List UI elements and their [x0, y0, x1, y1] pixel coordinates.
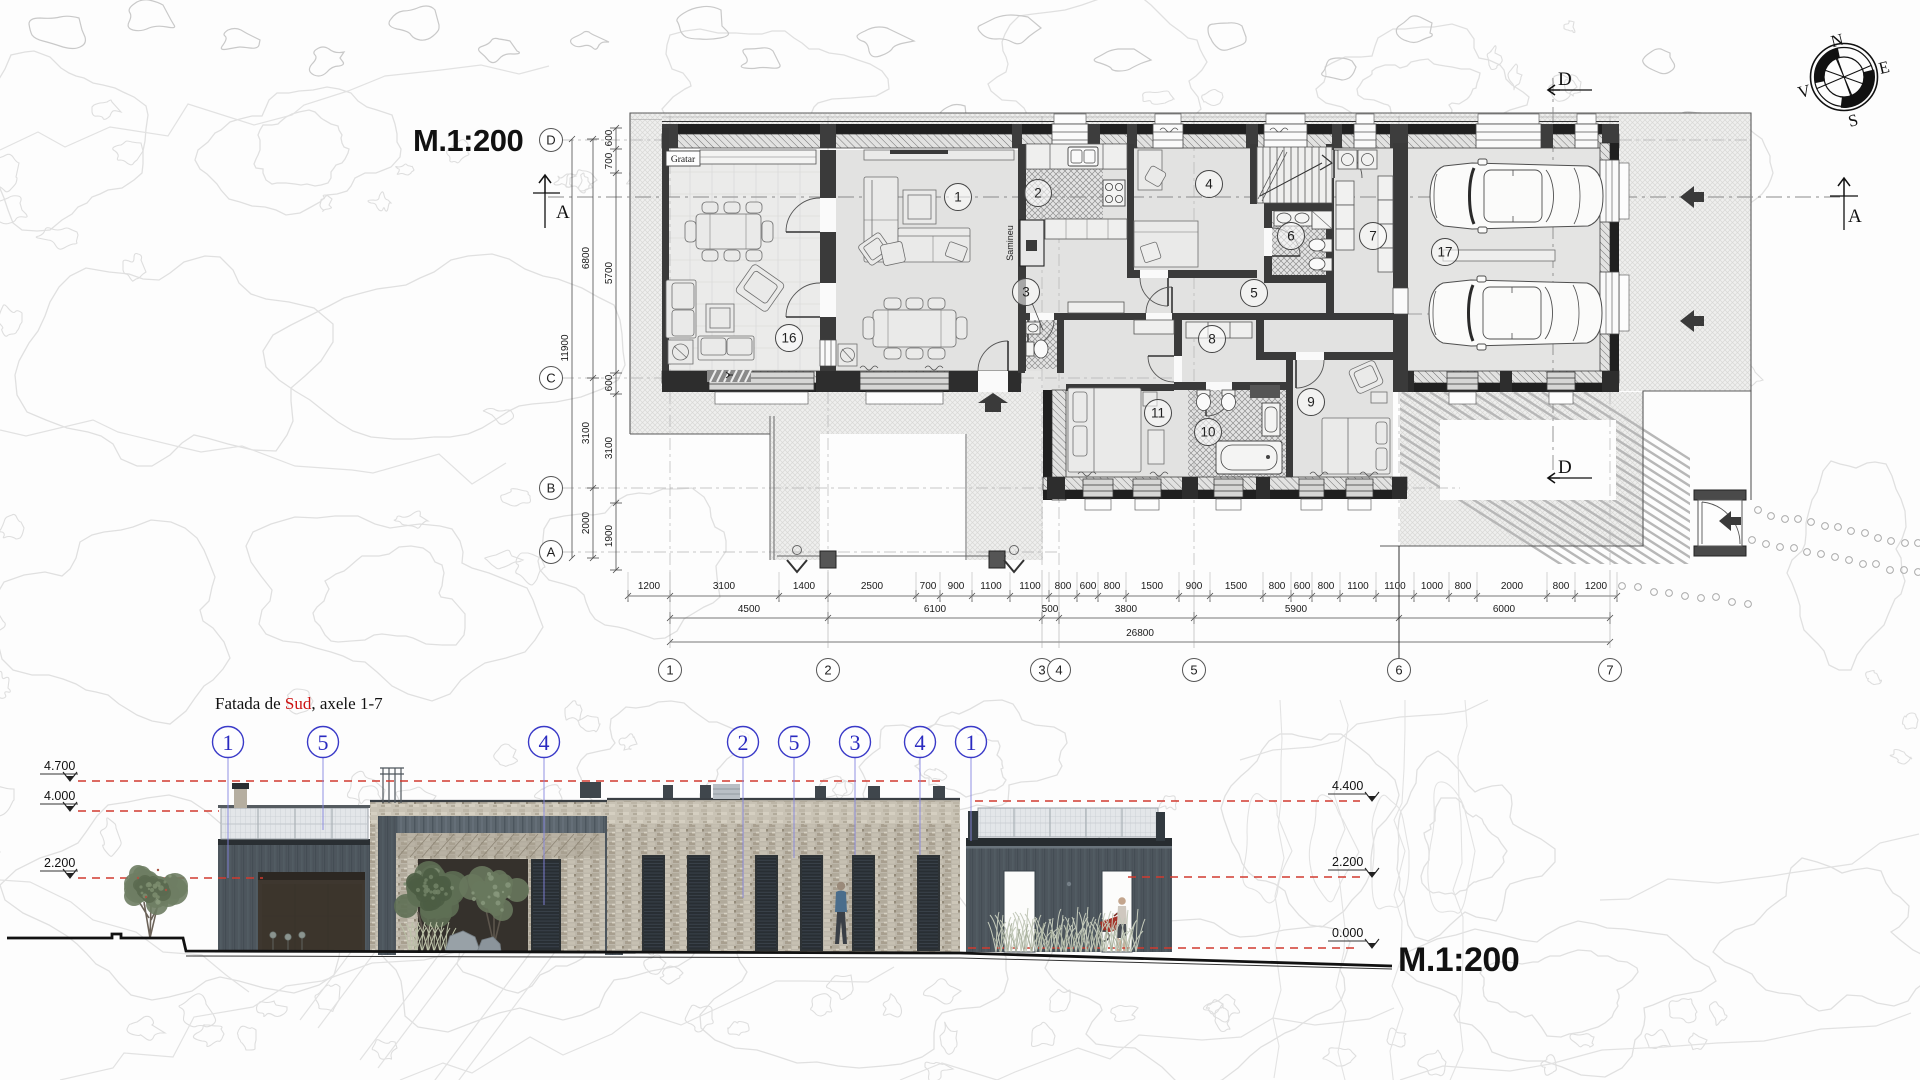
svg-text:3100: 3100	[604, 436, 615, 459]
svg-text:D: D	[1558, 69, 1572, 90]
svg-text:3100: 3100	[713, 581, 736, 592]
svg-text:10: 10	[1200, 425, 1215, 440]
svg-text:600: 600	[1080, 581, 1097, 592]
svg-text:E: E	[1877, 57, 1892, 78]
svg-text:6100: 6100	[924, 604, 947, 615]
svg-text:3100: 3100	[581, 421, 592, 444]
svg-text:600: 600	[604, 129, 615, 146]
svg-text:700: 700	[920, 581, 937, 592]
svg-text:800: 800	[1455, 581, 1472, 592]
svg-text:500: 500	[1042, 604, 1059, 615]
svg-text:4.700: 4.700	[44, 759, 75, 773]
svg-text:800: 800	[1553, 581, 1570, 592]
svg-text:4: 4	[539, 730, 550, 755]
svg-text:5: 5	[318, 730, 329, 755]
svg-text:1200: 1200	[638, 581, 661, 592]
svg-text:1400: 1400	[793, 581, 816, 592]
svg-text:A: A	[1848, 206, 1862, 227]
svg-text:1100: 1100	[1019, 581, 1041, 592]
svg-text:1200: 1200	[1585, 581, 1608, 592]
svg-text:1900: 1900	[604, 524, 615, 547]
svg-text:1000: 1000	[1421, 581, 1444, 592]
svg-text:4: 4	[1055, 663, 1062, 678]
svg-text:4.000: 4.000	[44, 789, 75, 803]
svg-text:5900: 5900	[1285, 604, 1308, 615]
svg-text:6: 6	[1395, 663, 1402, 678]
svg-text:800: 800	[1318, 581, 1335, 592]
svg-text:4500: 4500	[738, 604, 761, 615]
svg-text:11900: 11900	[560, 334, 571, 362]
svg-text:600: 600	[604, 374, 615, 391]
svg-text:2: 2	[738, 730, 749, 755]
svg-text:800: 800	[1055, 581, 1072, 592]
svg-text:A: A	[547, 545, 556, 560]
svg-text:1500: 1500	[1141, 581, 1164, 592]
svg-text:6000: 6000	[1493, 604, 1516, 615]
svg-text:26800: 26800	[1126, 628, 1154, 639]
svg-text:1: 1	[966, 730, 977, 755]
svg-text:600: 600	[1294, 581, 1311, 592]
svg-text:5700: 5700	[604, 261, 615, 284]
svg-text:2.200: 2.200	[1332, 855, 1363, 869]
svg-text:0.000: 0.000	[1332, 926, 1363, 940]
svg-text:1: 1	[223, 730, 234, 755]
svg-text:D: D	[1558, 457, 1572, 478]
svg-text:5: 5	[789, 730, 800, 755]
svg-text:2000: 2000	[1501, 581, 1524, 592]
svg-text:11: 11	[1151, 406, 1165, 421]
svg-text:6: 6	[1287, 229, 1295, 244]
svg-text:16: 16	[781, 331, 796, 346]
svg-text:2500: 2500	[861, 581, 884, 592]
svg-text:S: S	[1846, 110, 1860, 131]
svg-text:900: 900	[948, 581, 965, 592]
svg-text:800: 800	[1269, 581, 1286, 592]
svg-text:2: 2	[1034, 186, 1042, 201]
svg-text:1100: 1100	[1347, 581, 1369, 592]
svg-text:Fatada de Sud, axele 1-7: Fatada de Sud, axele 1-7	[215, 694, 383, 713]
svg-text:700: 700	[604, 152, 615, 169]
svg-text:9: 9	[1307, 395, 1315, 410]
svg-text:17: 17	[1437, 245, 1452, 260]
svg-text:1: 1	[954, 190, 962, 205]
svg-text:Samineu: Samineu	[1005, 225, 1015, 261]
svg-text:M.1:200: M.1:200	[1398, 941, 1519, 979]
svg-text:4: 4	[1205, 177, 1213, 192]
svg-text:1500: 1500	[1225, 581, 1248, 592]
svg-text:3: 3	[850, 730, 861, 755]
svg-text:D: D	[546, 133, 555, 148]
svg-text:7: 7	[1606, 663, 1613, 678]
svg-text:4: 4	[915, 730, 926, 755]
svg-text:7: 7	[1369, 229, 1377, 244]
svg-text:6800: 6800	[581, 246, 592, 269]
svg-text:1100: 1100	[1384, 581, 1406, 592]
svg-text:3: 3	[1022, 285, 1030, 300]
svg-text:C: C	[546, 371, 555, 386]
svg-text:1100: 1100	[980, 581, 1002, 592]
svg-text:N: N	[1829, 30, 1846, 51]
svg-text:900: 900	[1186, 581, 1203, 592]
svg-text:Gratar: Gratar	[671, 155, 696, 165]
svg-text:2000: 2000	[581, 511, 592, 534]
svg-text:4.400: 4.400	[1332, 779, 1363, 793]
svg-text:2.200: 2.200	[44, 856, 75, 870]
svg-text:3: 3	[1038, 663, 1045, 678]
svg-text:M.1:200: M.1:200	[413, 123, 523, 158]
svg-text:A: A	[556, 202, 570, 223]
svg-text:3800: 3800	[1115, 604, 1138, 615]
svg-text:2: 2	[824, 663, 831, 678]
svg-text:1: 1	[666, 663, 673, 678]
svg-text:B: B	[547, 481, 556, 496]
svg-text:5: 5	[1250, 286, 1258, 301]
svg-text:8: 8	[1208, 332, 1216, 347]
svg-text:5: 5	[1190, 663, 1197, 678]
svg-text:800: 800	[1104, 581, 1121, 592]
